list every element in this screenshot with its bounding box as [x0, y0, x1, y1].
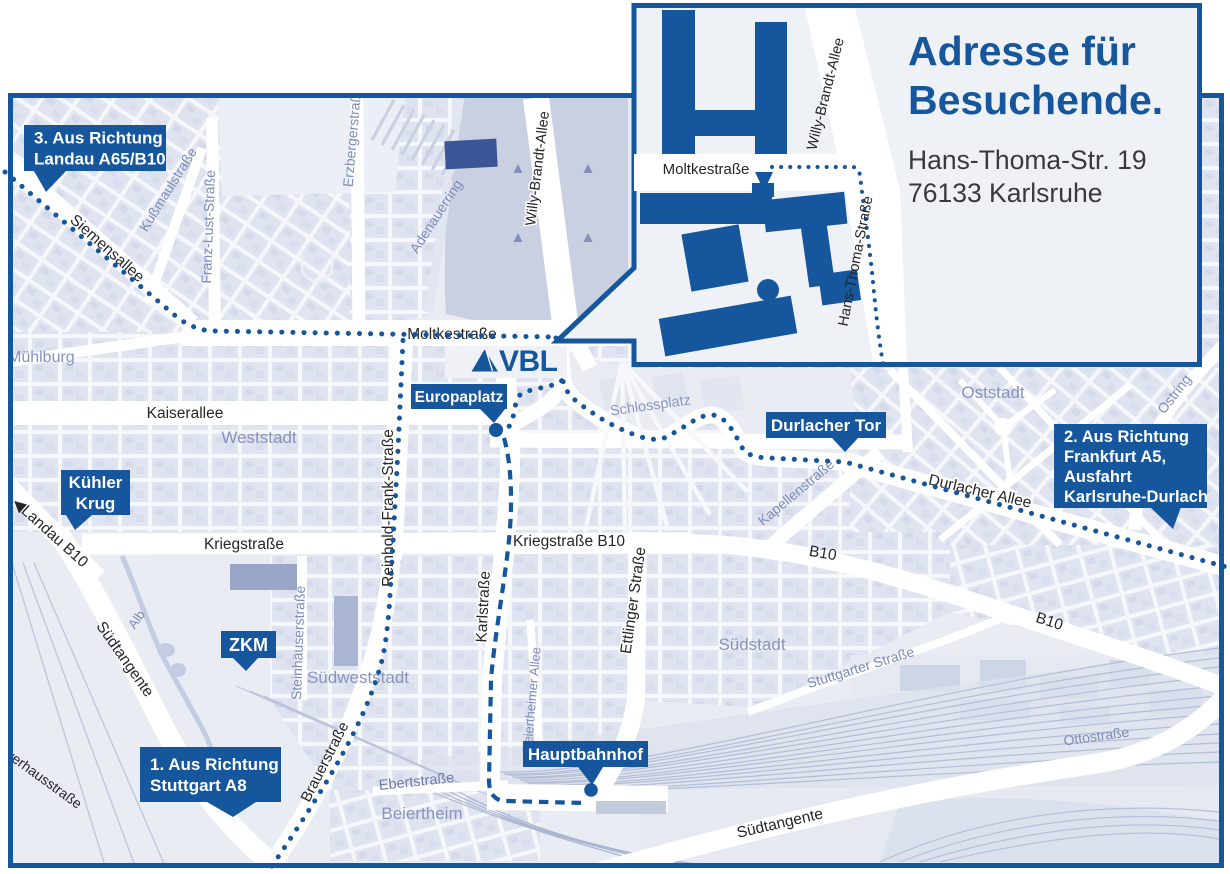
svg-text:Kriegstraße B10: Kriegstraße B10: [513, 533, 625, 550]
svg-text:Durlacher Tor: Durlacher Tor: [771, 416, 882, 435]
svg-text:Ausfahrt: Ausfahrt: [1064, 468, 1132, 486]
svg-text:Krug: Krug: [76, 494, 116, 513]
svg-text:Besuchende.: Besuchende.: [908, 77, 1163, 123]
svg-text:Mühlburg: Mühlburg: [8, 349, 75, 366]
svg-text:Karlsruhe-Durlach: Karlsruhe-Durlach: [1064, 488, 1208, 506]
svg-text:Südstadt: Südstadt: [718, 635, 785, 654]
svg-text:Moltkestraße: Moltkestraße: [663, 161, 750, 178]
svg-text:Südweststadt: Südweststadt: [307, 668, 409, 687]
svg-text:Hans-Thoma-Str. 19: Hans-Thoma-Str. 19: [908, 145, 1147, 175]
svg-text:Frankfurt A5,: Frankfurt A5,: [1064, 448, 1166, 466]
svg-text:ZKM: ZKM: [229, 635, 268, 655]
svg-text:Kriegstraße: Kriegstraße: [204, 536, 284, 553]
svg-text:76133 Karlsruhe: 76133 Karlsruhe: [908, 178, 1102, 208]
svg-text:2. Aus Richtung: 2. Aus Richtung: [1064, 428, 1189, 446]
svg-text:Landau A65/B10: Landau A65/B10: [34, 150, 166, 169]
svg-text:Beiertheim: Beiertheim: [381, 804, 462, 823]
svg-text:Adresse für: Adresse für: [908, 28, 1136, 74]
svg-text:1. Aus Richtung: 1. Aus Richtung: [150, 755, 279, 774]
svg-text:Stuttgart A8: Stuttgart A8: [150, 776, 247, 795]
svg-text:3. Aus Richtung: 3. Aus Richtung: [34, 129, 163, 148]
svg-text:Hauptbahnhof: Hauptbahnhof: [528, 745, 644, 764]
svg-text:Kaiserallee: Kaiserallee: [147, 405, 224, 422]
svg-text:Kühler: Kühler: [69, 473, 123, 492]
svg-text:Europaplatz: Europaplatz: [415, 389, 504, 406]
svg-text:Weststadt: Weststadt: [221, 428, 297, 447]
svg-text:VBL: VBL: [499, 345, 558, 378]
svg-text:Oststadt: Oststadt: [961, 383, 1025, 402]
